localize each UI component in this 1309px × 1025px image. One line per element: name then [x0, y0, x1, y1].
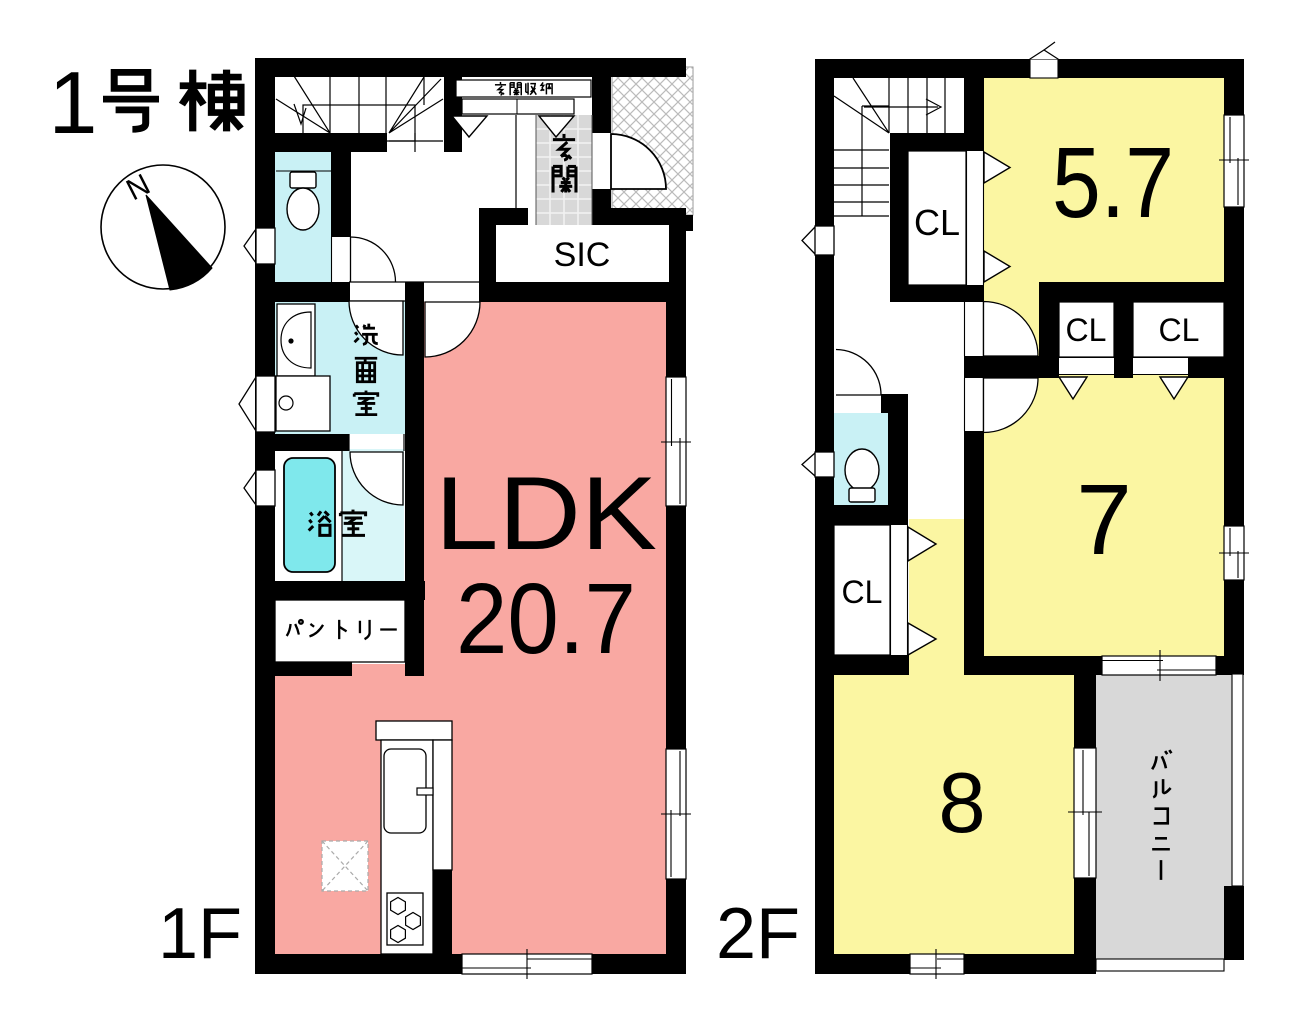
svg-text:SIC: SIC: [554, 236, 611, 274]
svg-text:1F: 1F: [158, 894, 242, 974]
svg-text:5.7: 5.7: [1052, 127, 1174, 239]
svg-text:CL: CL: [842, 574, 883, 610]
svg-text:8: 8: [938, 756, 985, 851]
svg-text:CL: CL: [914, 202, 960, 243]
svg-text:CL: CL: [1159, 312, 1200, 348]
svg-text:20.7: 20.7: [456, 563, 636, 675]
svg-text:2F: 2F: [716, 894, 800, 974]
svg-text:7: 7: [1076, 464, 1132, 576]
svg-text:CL: CL: [1066, 312, 1107, 348]
svg-text:LDK: LDK: [435, 456, 657, 572]
svg-text:1: 1: [49, 53, 98, 152]
